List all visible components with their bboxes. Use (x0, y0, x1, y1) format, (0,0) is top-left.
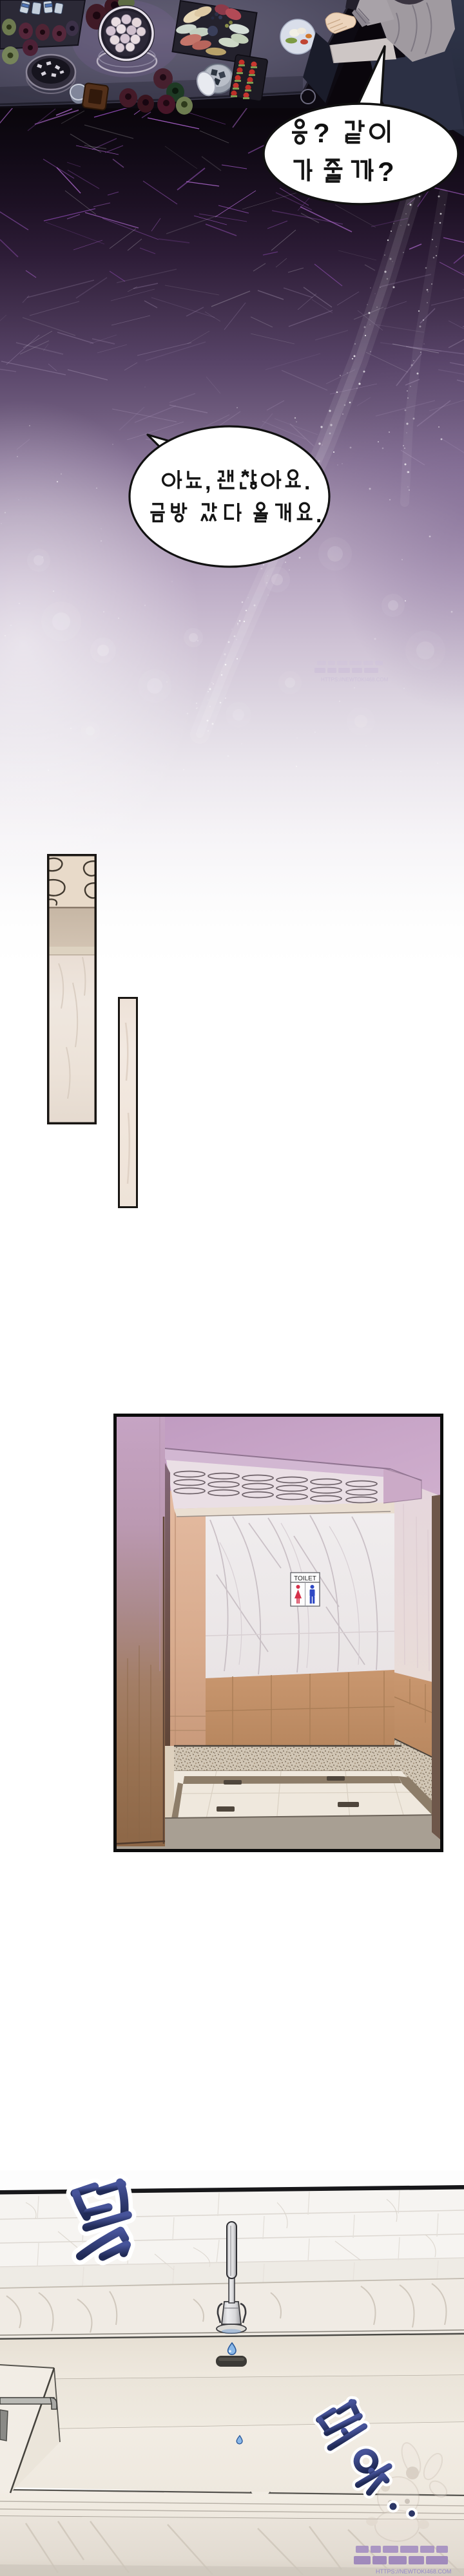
svg-text:TOILET: TOILET (294, 1575, 316, 1582)
svg-text:.: . (304, 470, 310, 495)
svg-text:,: , (205, 470, 211, 495)
svg-text:?: ? (313, 118, 330, 148)
svg-text:?: ? (378, 156, 394, 187)
svg-text:.: . (316, 503, 322, 527)
svg-text:HTTPS://NEWTOKI468.COM: HTTPS://NEWTOKI468.COM (376, 2568, 451, 2575)
svg-text:HTTPS://NEWTOKI468.COM: HTTPS://NEWTOKI468.COM (321, 677, 389, 683)
